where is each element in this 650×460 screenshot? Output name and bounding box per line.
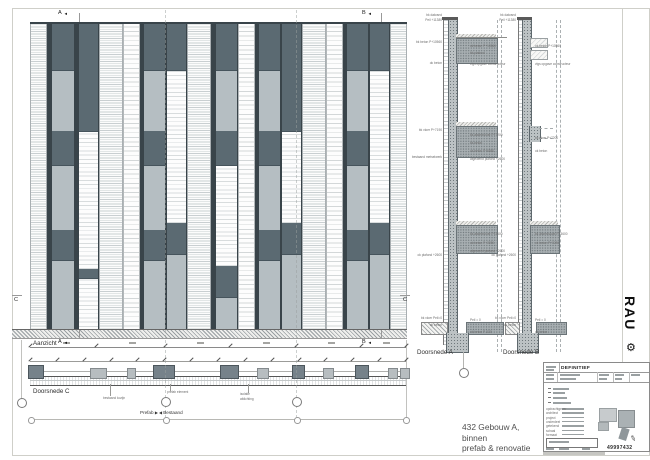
facade-strip-panel (346, 24, 369, 331)
label-doorsnede-a: Doorsnede A (417, 349, 453, 356)
facade-panel-segment (370, 223, 389, 254)
tb-highlight-box (546, 438, 598, 448)
facade-panel-segment (282, 132, 301, 224)
facade-strip-panel (215, 24, 238, 331)
dim-number-mark (383, 342, 390, 344)
facade-panel-segment (79, 269, 98, 279)
facade-panel-segment (216, 131, 237, 165)
reference-line (296, 10, 297, 418)
tb-site-sketch (618, 410, 635, 428)
tb-field-value (562, 430, 584, 432)
tb-cell-mark (599, 378, 607, 380)
tb-field-label: formaat (546, 433, 557, 437)
facade-panel-segment (282, 24, 301, 132)
ground-band (12, 329, 407, 339)
tb-cell-mark (546, 374, 554, 376)
dim-number-mark (263, 342, 270, 344)
facade-panel-segment (79, 279, 98, 331)
cut-arrow-icon: ◄ (368, 11, 372, 16)
tb-cell-mark (631, 374, 640, 376)
facade-panel-segment (144, 131, 165, 165)
cut-tick (79, 330, 80, 339)
facade-strip-panel (51, 24, 75, 331)
facade-panel-segment (144, 261, 165, 331)
facade-panel-segment (282, 255, 301, 331)
section-marker-c-right: C (403, 297, 407, 303)
facade-panel-segment (167, 24, 186, 71)
tb-site-sketch (618, 427, 629, 441)
facade-panel-segment (347, 261, 368, 331)
reference-line (21, 340, 22, 400)
facade-panel-segment (144, 71, 165, 132)
facade-panel-segment (370, 255, 389, 331)
tb-site-sketch (598, 422, 609, 431)
facade-strip-sparse (326, 24, 343, 331)
facade-strip-panel (78, 24, 99, 331)
cut-tick (381, 13, 382, 22)
marker-letter: B (362, 10, 366, 16)
cut-arrow-icon: ◄ (64, 340, 68, 345)
cut-arrow-icon: ◄ (368, 340, 372, 345)
facade-panel-segment (52, 166, 74, 230)
facade-panel-segment (259, 230, 280, 261)
tb-text-mark (546, 366, 556, 368)
facade-panel-segment (370, 24, 389, 71)
drawing-title-line1: 432 Gebouw A, (462, 422, 530, 433)
marker-letter: A (58, 10, 62, 16)
tb-row-border (544, 382, 649, 383)
facade-panel-segment (347, 230, 368, 261)
tb-text-mark (546, 369, 554, 371)
pencil-icon: ✎ (629, 434, 637, 443)
tb-legend-tick (548, 388, 551, 389)
tb-field-value (562, 421, 584, 423)
reference-line (406, 340, 407, 418)
section-marker-a-bottom: A ◄ (58, 339, 68, 345)
drawing-sheet: A ◄ B ◄ A ◄ B ◄ C C Aanzicht Doorsnede C… (0, 0, 650, 460)
label-doorsnede-b: Doorsnede B (503, 349, 539, 356)
facade-panel-segment (282, 223, 301, 254)
title-block: DEFINITIEF 49997432 ✎ opdrachtgeverarchi… (543, 362, 650, 452)
marker-letter: B (362, 339, 366, 345)
cut-tick (400, 295, 410, 296)
facade-strip-louver (187, 24, 211, 331)
dimension-line (30, 347, 406, 348)
cut-arrow-icon: ◄ (64, 11, 68, 16)
prefab-bestaand-line (30, 419, 406, 420)
facade-strip-panel (166, 24, 187, 331)
facade-panel-segment (347, 71, 368, 132)
facade-strip-panel (143, 24, 166, 331)
facade-panel-segment (52, 131, 74, 165)
facade-panel-segment (216, 24, 237, 71)
facade-panel-segment (79, 24, 98, 132)
facade-panel-segment (167, 255, 186, 331)
facade-panel-segment (259, 166, 280, 230)
tb-field-value (562, 434, 584, 436)
tb-divider (613, 372, 614, 382)
facade-strip-louver (30, 24, 47, 331)
status-definitief: DEFINITIEF (561, 366, 590, 371)
arrow-left-icon: ◀ (159, 411, 162, 415)
tb-legend-mark (553, 397, 567, 399)
tb-divider (629, 372, 630, 382)
reference-line (165, 10, 166, 418)
facade-panel-segment (52, 71, 74, 132)
facade-strip-sparse (123, 24, 140, 331)
tb-cell-mark (615, 378, 622, 380)
facade-strip-louver (390, 24, 407, 331)
facade-strip-panel (258, 24, 281, 331)
facade-panel-segment (167, 223, 186, 254)
facade-panel-segment (216, 266, 237, 297)
facade-panel-segment (347, 166, 368, 230)
facade-panel-segment (52, 24, 74, 71)
tb-divider (597, 372, 598, 382)
tb-divider (557, 372, 558, 382)
dim-number-mark (197, 342, 204, 344)
facade-panel-segment (216, 71, 237, 132)
tb-legend-tick (548, 397, 551, 398)
facade-panel-segment (144, 166, 165, 230)
facade-panel-segment (79, 132, 98, 269)
facade-panel-segment (259, 131, 280, 165)
facade-panel-segment (216, 298, 237, 331)
tb-field-value (562, 417, 584, 419)
tb-legend-tick (548, 392, 551, 393)
cut-tick (381, 330, 382, 339)
tb-site-sketch (599, 408, 617, 422)
facade-panel-segment (144, 24, 165, 71)
tb-bottom-mark (546, 448, 554, 450)
section-marker-b-top: B ◄ (362, 10, 372, 16)
facade-panel-segment (52, 230, 74, 261)
facade-panel-segment (144, 230, 165, 261)
label-bestaand: Bestaand (163, 410, 182, 415)
tb-cell-mark (599, 374, 609, 376)
facade-strip-louver (302, 24, 326, 331)
tb-cell-mark (615, 374, 624, 376)
facade-elevation (30, 22, 407, 332)
tb-legend-mark (553, 402, 571, 404)
tb-legend-mark (553, 388, 569, 390)
cut-tick (12, 295, 22, 296)
facade-strip-panel (281, 24, 302, 331)
facade-panel-segment (259, 71, 280, 132)
drawing-title-line3: prefab & renovatie (462, 443, 530, 454)
facade-strip-sparse (238, 24, 255, 331)
prefab-bestaand-label: Prefab ▶ ◀ Bestaand (140, 410, 183, 415)
tb-bottom-mark (559, 448, 569, 450)
tb-cell-mark (560, 378, 576, 380)
tb-legend-tick (548, 402, 551, 403)
marker-letter: A (58, 339, 62, 345)
label-doorsnede-c: Doorsnede C (33, 388, 69, 395)
facade-panel-segment (347, 131, 368, 165)
tb-field-value (562, 412, 584, 414)
drawing-title: 432 Gebouw A, binnen prefab & renovatie (462, 422, 530, 454)
facade-strip-louver (99, 24, 123, 331)
tb-highlight-mark (549, 441, 569, 443)
facade-panel-segment (259, 24, 280, 71)
tb-divider (559, 363, 560, 372)
label-aanzicht: Aanzicht (33, 340, 57, 347)
marker-letter: C (14, 297, 18, 303)
marker-letter: C (403, 297, 407, 303)
facade-panel-segment (370, 71, 389, 224)
cut-tick (79, 13, 80, 22)
facade-panel-segment (167, 71, 186, 224)
tb-cell-mark (560, 374, 580, 376)
dim-number-mark (129, 342, 136, 344)
arrow-right-icon: ▶ (155, 411, 158, 415)
tb-field-value (562, 425, 584, 427)
rau-gear-icon: ⚙ (626, 343, 636, 354)
document-number: 49997432 (607, 445, 632, 451)
section-marker-a-top: A ◄ (58, 10, 68, 16)
facade-strip-panel (369, 24, 390, 331)
tb-legend-mark (553, 392, 565, 394)
facade-panel-segment (216, 166, 237, 266)
tb-bottom-mark (582, 448, 590, 450)
label-prefab: Prefab (140, 410, 154, 415)
section-marker-c-left: C (14, 297, 18, 303)
rau-logo: RAU (622, 296, 638, 331)
dim-number-mark (328, 342, 335, 344)
facade-panel-segment (52, 261, 74, 331)
tb-cell-mark (546, 378, 554, 380)
title-block-footer (543, 452, 605, 455)
drawing-title-line2: binnen (462, 433, 530, 444)
facade-panel-segment (347, 24, 368, 71)
section-marker-b-bottom: B ◄ (362, 339, 372, 345)
facade-panel-segment (259, 261, 280, 331)
